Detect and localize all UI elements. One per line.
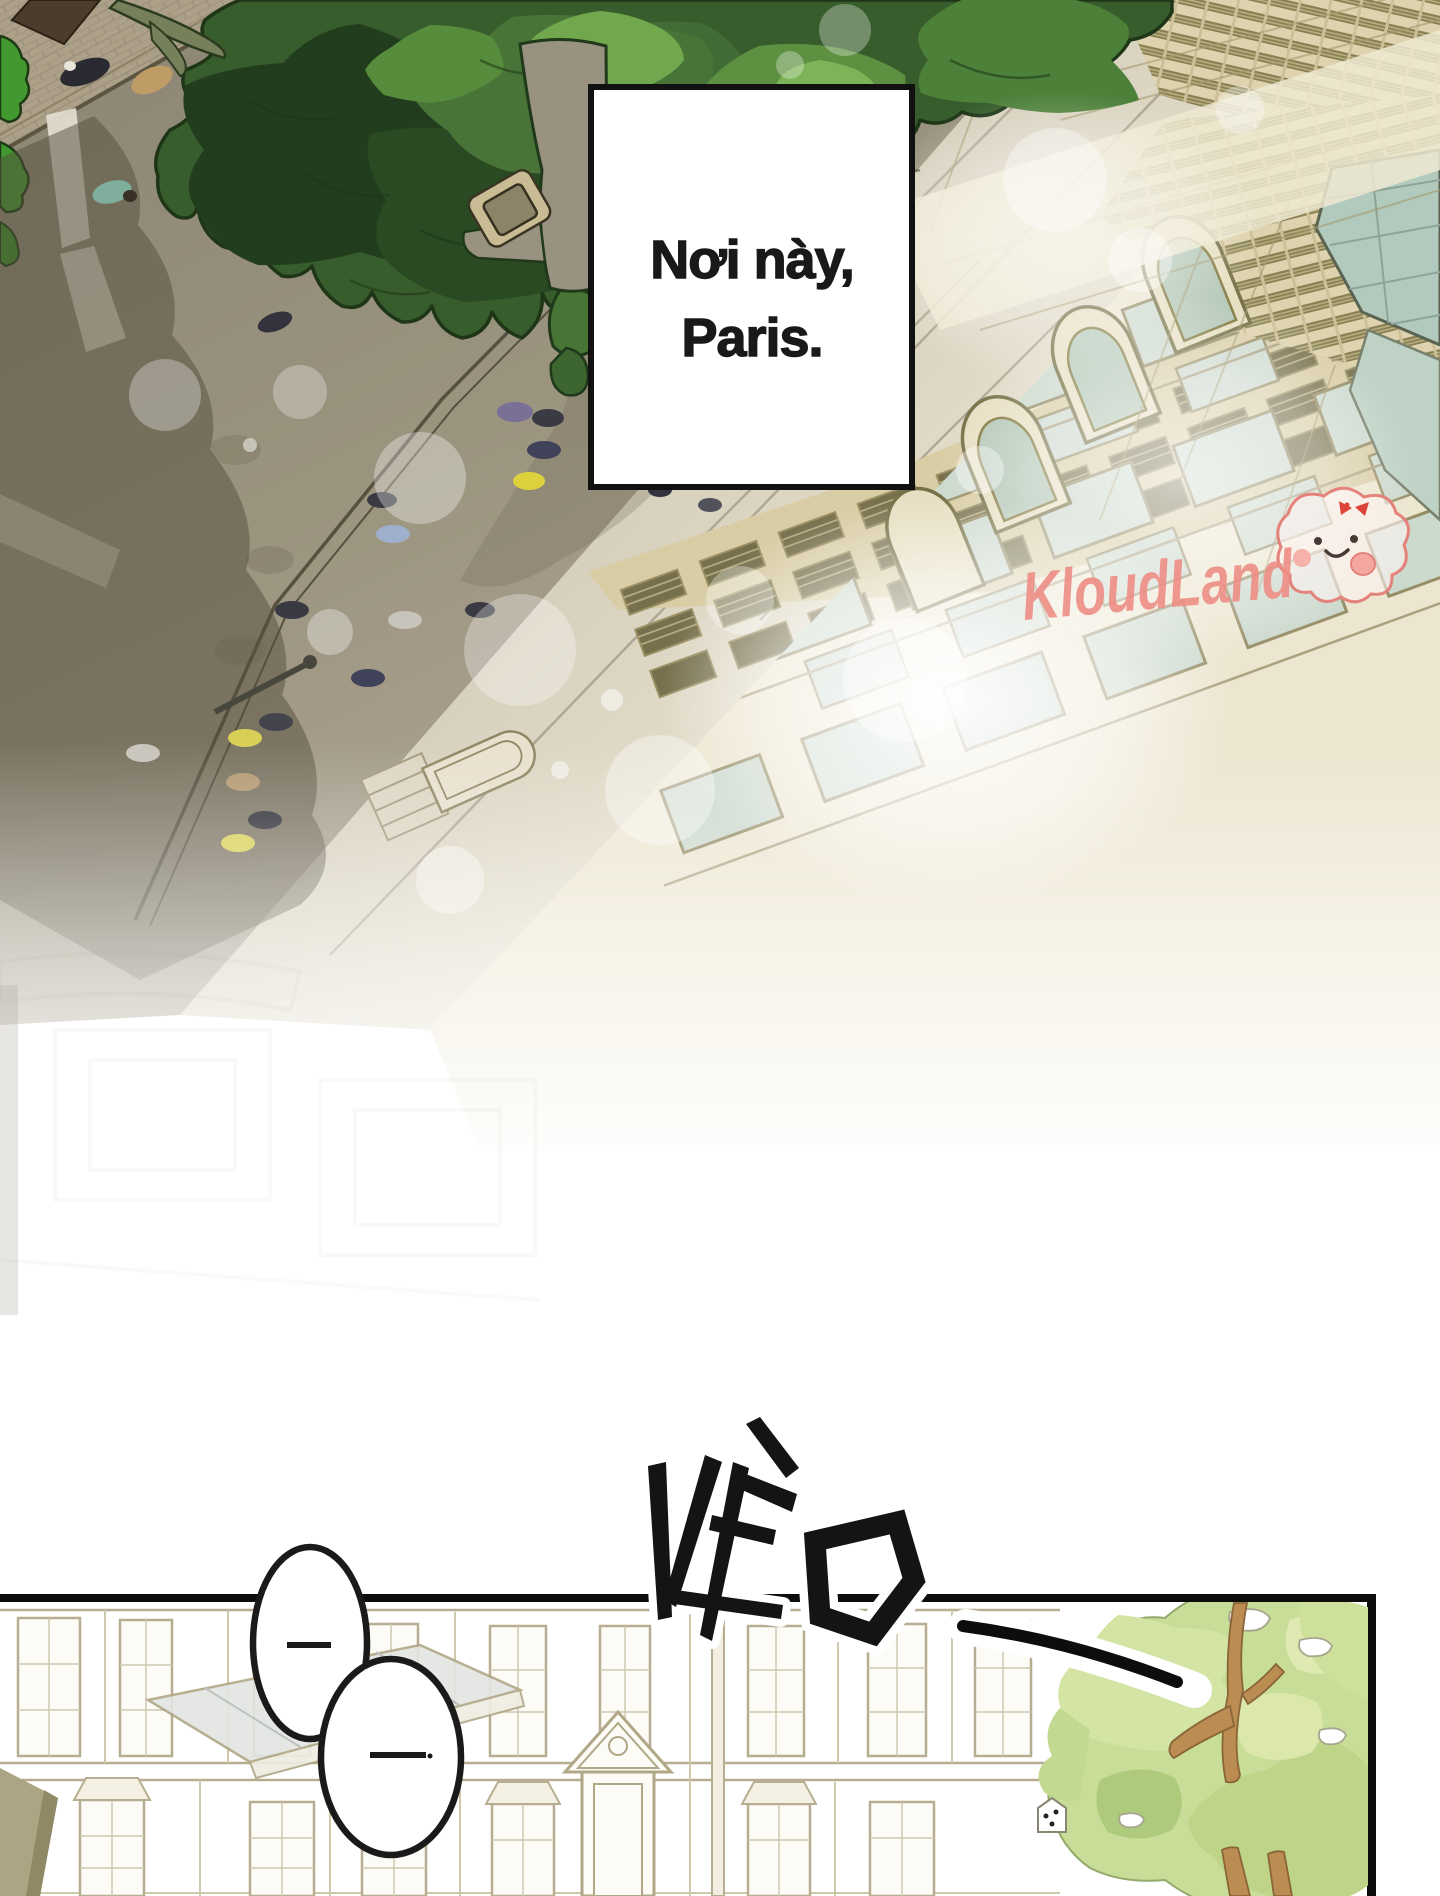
- svg-text:Paris.: Paris.: [681, 308, 822, 368]
- svg-text:Nơi này,: Nơi này,: [650, 230, 853, 290]
